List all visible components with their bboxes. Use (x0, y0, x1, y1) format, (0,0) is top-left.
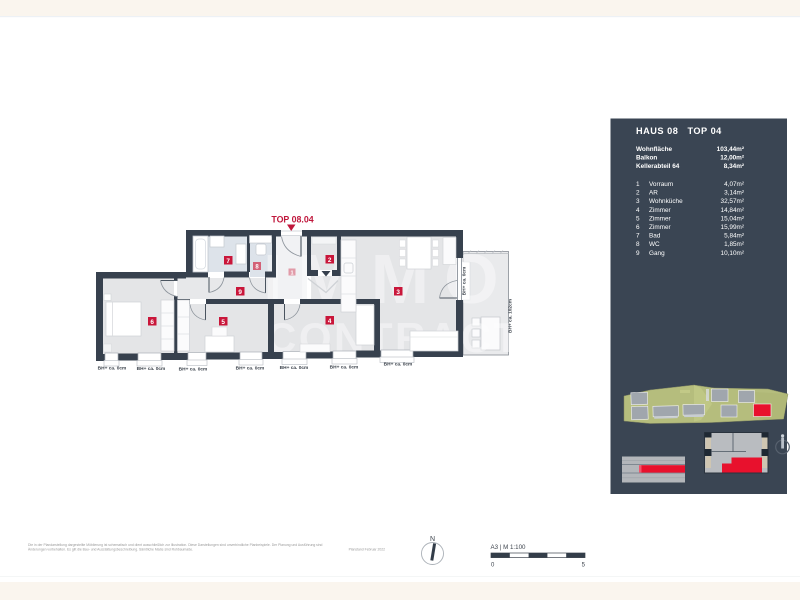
svg-text:Kellerabteil 64: Kellerabteil 64 (636, 163, 680, 170)
svg-text:7: 7 (636, 233, 640, 240)
svg-text:3: 3 (396, 289, 400, 296)
svg-text:1,85m²: 1,85m² (724, 241, 744, 248)
svg-text:AR: AR (649, 190, 658, 197)
svg-text:10,10m²: 10,10m² (721, 250, 744, 257)
svg-text:TOP 08.04: TOP 08.04 (271, 215, 313, 225)
svg-text:2: 2 (636, 190, 640, 197)
svg-text:Wohnküche: Wohnküche (649, 198, 683, 205)
svg-text:Zimmer: Zimmer (649, 207, 672, 214)
svg-text:Änderungen vorbehalten. Es gil: Änderungen vorbehalten. Es gilt die Bau-… (28, 548, 193, 552)
svg-text:1: 1 (290, 270, 293, 276)
svg-text:BH+ ca. 0cm: BH+ ca. 0cm (330, 365, 359, 371)
svg-text:BH+ ca. 0cm: BH+ ca. 0cm (236, 366, 265, 372)
svg-text:12,00m²: 12,00m² (720, 155, 744, 162)
svg-text:Balkon: Balkon (636, 155, 657, 162)
svg-text:5,84m²: 5,84m² (724, 233, 744, 240)
svg-text:Vorraum: Vorraum (649, 181, 673, 188)
svg-text:4: 4 (636, 207, 640, 214)
svg-text:9: 9 (238, 289, 242, 296)
svg-text:15,99m²: 15,99m² (721, 224, 744, 231)
svg-text:6: 6 (636, 224, 640, 231)
svg-text:BH+ ca. 0cm: BH+ ca. 0cm (98, 366, 127, 372)
svg-text:3: 3 (636, 198, 640, 205)
svg-text:0: 0 (491, 563, 495, 569)
svg-text:8: 8 (636, 241, 640, 248)
svg-text:HAUS 08 TOP 04: HAUS 08 TOP 04 (636, 126, 722, 136)
svg-text:BH+ ca. 0cm: BH+ ca. 0cm (137, 366, 166, 372)
svg-text:Die in der Plandarstellung dar: Die in der Plandarstellung dargestellte … (28, 543, 323, 547)
svg-text:BH+ ca. 0cm: BH+ ca. 0cm (179, 367, 208, 373)
svg-text:6: 6 (150, 319, 154, 326)
svg-text:BH+ ca. 0cm: BH+ ca. 0cm (462, 267, 468, 296)
svg-text:5: 5 (636, 215, 640, 222)
svg-text:Bad: Bad (649, 233, 661, 240)
svg-text:Zimmer: Zimmer (649, 224, 672, 231)
svg-text:4,07m²: 4,07m² (724, 181, 744, 188)
svg-text:5: 5 (221, 319, 225, 326)
svg-text:BH+ ca. 102cm: BH+ ca. 102cm (508, 299, 514, 333)
svg-text:N: N (430, 536, 435, 543)
svg-text:1: 1 (636, 181, 640, 188)
svg-text:3,14m²: 3,14m² (724, 190, 744, 197)
svg-text:BH+ ca. 0cm: BH+ ca. 0cm (280, 365, 309, 371)
svg-text:32,57m²: 32,57m² (721, 198, 744, 205)
svg-text:Wohnfläche: Wohnfläche (636, 146, 673, 153)
svg-text:WC: WC (649, 241, 660, 248)
svg-text:15,04m²: 15,04m² (721, 215, 744, 222)
svg-text:A3 | M 1:100: A3 | M 1:100 (491, 544, 527, 551)
svg-text:5: 5 (582, 563, 586, 569)
svg-text:4: 4 (328, 318, 332, 325)
svg-text:Planstand Februar 2022: Planstand Februar 2022 (349, 548, 385, 552)
svg-text:9: 9 (636, 250, 640, 257)
svg-text:Zimmer: Zimmer (649, 215, 672, 222)
svg-text:2: 2 (328, 257, 332, 264)
svg-text:Gang: Gang (649, 250, 665, 257)
svg-text:7: 7 (226, 258, 230, 265)
svg-text:8,34m²: 8,34m² (724, 163, 744, 170)
svg-text:14,84m²: 14,84m² (721, 207, 744, 214)
svg-text:103,44m²: 103,44m² (717, 146, 744, 153)
svg-text:BH+ ca. 0cm: BH+ ca. 0cm (384, 362, 413, 368)
